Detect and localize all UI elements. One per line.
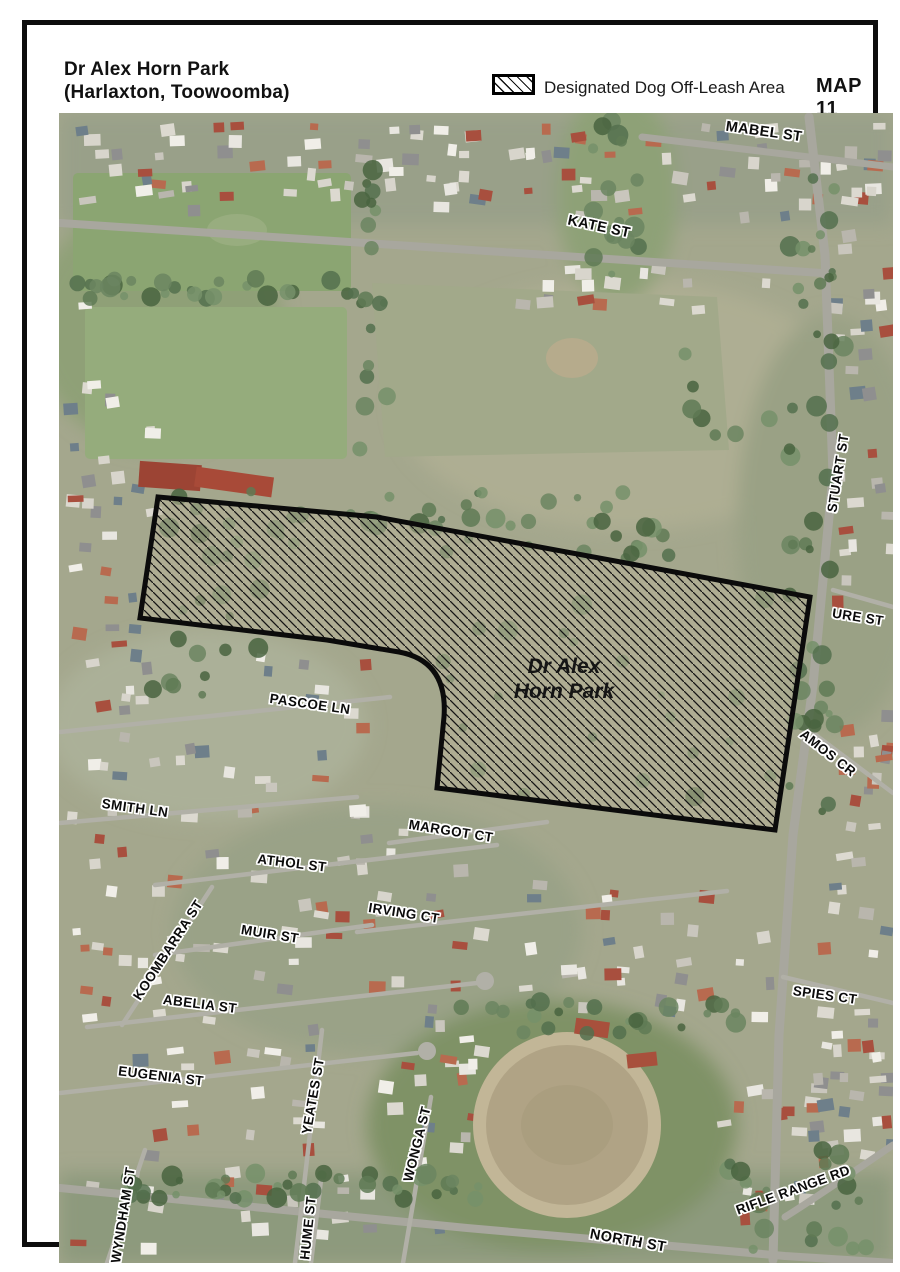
map-frame: Dr Alex Horn Park (Harlaxton, Toowoomba)… bbox=[22, 20, 878, 1247]
aerial-photo: Dr Alex Horn Park MABEL ST KATE ST STUAR… bbox=[59, 113, 893, 1263]
map-title-line2: (Harlaxton, Toowoomba) bbox=[64, 82, 290, 105]
park-name-line2: Horn Park bbox=[514, 680, 614, 705]
legend-label: Designated Dog Off-Leash Area bbox=[544, 78, 785, 98]
map-page: Dr Alex Horn Park (Harlaxton, Toowoomba)… bbox=[0, 0, 900, 1272]
park-name-line1: Dr Alex bbox=[514, 655, 614, 680]
aerial-photo-art bbox=[59, 113, 893, 1263]
map-title-line1: Dr Alex Horn Park bbox=[64, 59, 290, 82]
park-name-label: Dr Alex Horn Park bbox=[514, 655, 614, 705]
map-title: Dr Alex Horn Park (Harlaxton, Toowoomba) bbox=[64, 59, 290, 105]
hatch-swatch-icon bbox=[492, 74, 535, 95]
